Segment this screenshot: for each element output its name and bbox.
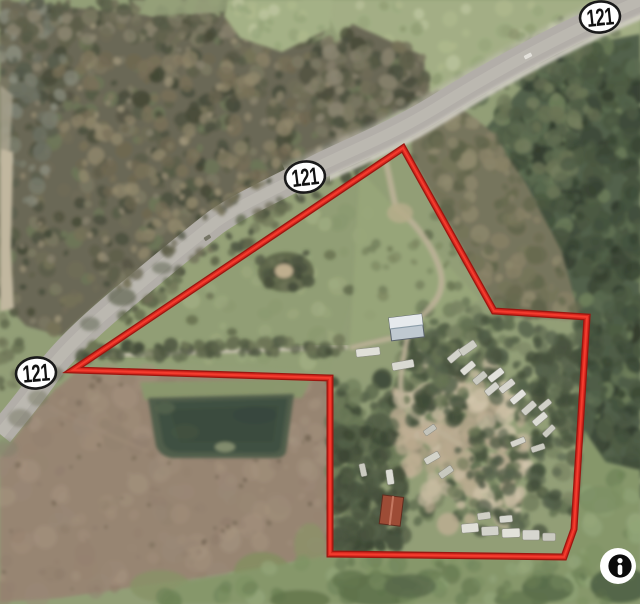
svg-text:121: 121: [22, 359, 52, 388]
svg-text:121: 121: [290, 163, 320, 193]
svg-text:121: 121: [585, 3, 615, 33]
